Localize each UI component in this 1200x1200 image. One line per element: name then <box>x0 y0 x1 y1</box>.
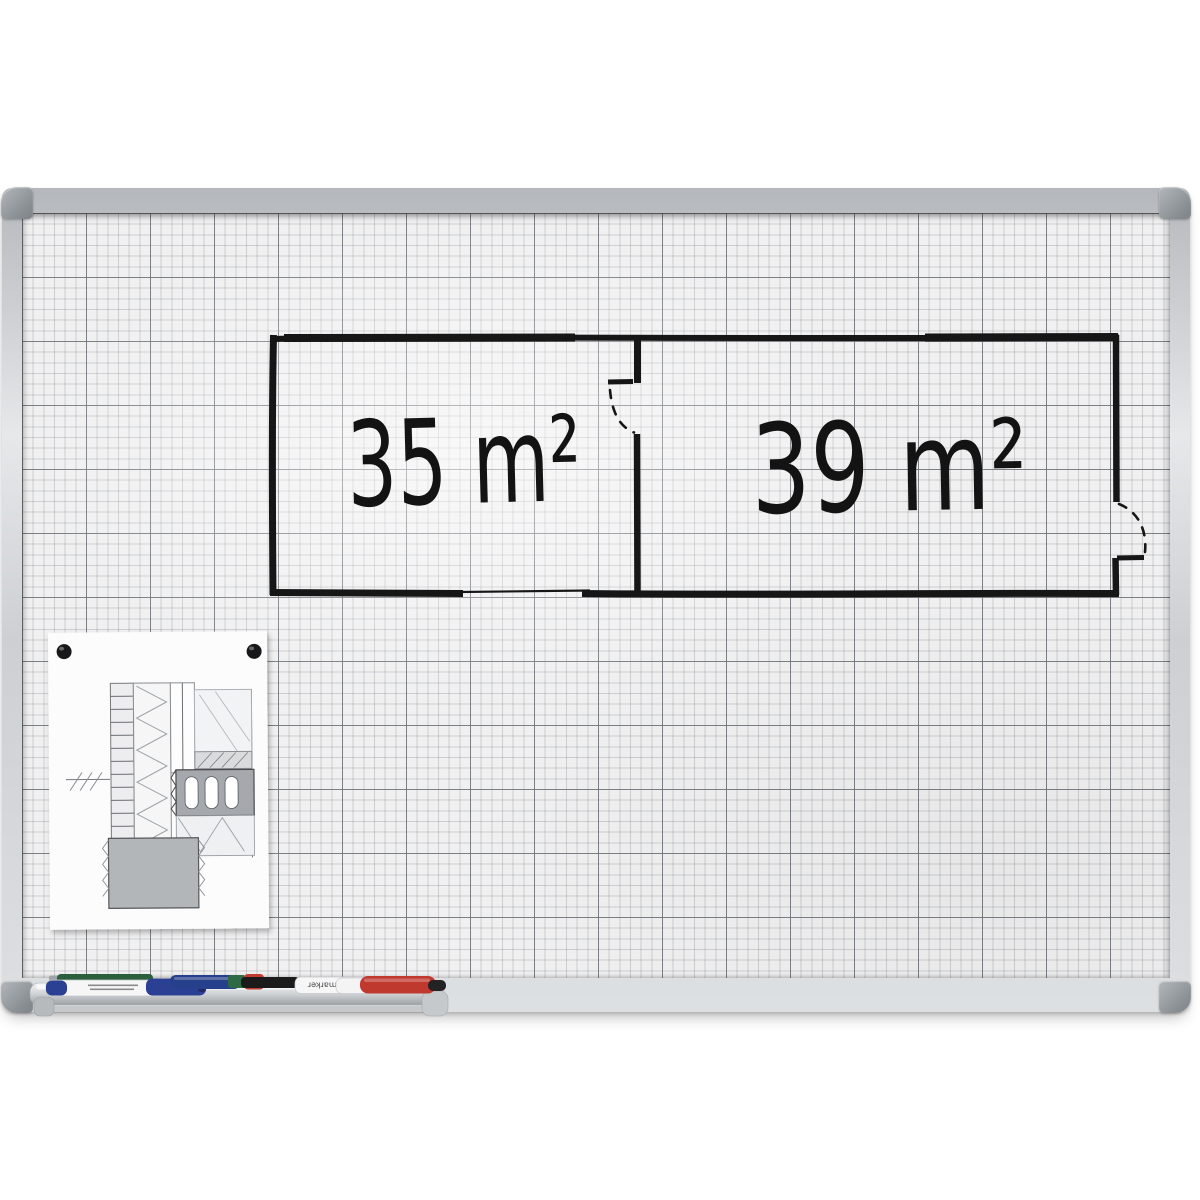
room-area-label-right: 39 m² <box>750 394 1028 543</box>
pen-tray: Planmarker <box>30 974 448 1016</box>
marker-fine-print <box>90 989 134 991</box>
door-leaf <box>1117 558 1144 559</box>
wall-bottom-thin <box>460 591 590 593</box>
marker-red <box>336 976 446 994</box>
door-leaf <box>608 382 633 383</box>
wall-bottom-right <box>582 593 1119 594</box>
wall-top-overstroke-left <box>284 338 575 339</box>
slab-void <box>205 777 218 809</box>
marker-highlight <box>364 979 430 983</box>
door-swing-exterior <box>1117 504 1145 558</box>
pin-highlight <box>59 647 64 651</box>
wall-left <box>272 335 273 595</box>
push-pin-left <box>57 644 72 659</box>
slab-void <box>225 776 238 808</box>
marker-end <box>46 981 67 996</box>
inner-layer-line <box>182 683 183 773</box>
marker-highlight <box>174 977 234 980</box>
room-area-label-left: 35 m² <box>345 390 583 534</box>
overlay-artwork: 35 m² 39 m² <box>0 0 1200 1200</box>
pin-highlight <box>249 646 254 650</box>
wall-right-lower <box>1116 558 1117 595</box>
push-pin-right <box>247 644 262 659</box>
masonry-column <box>110 683 134 841</box>
marker-cap <box>241 977 299 988</box>
pinned-paper <box>48 631 269 930</box>
tray-shadow <box>36 1006 436 1013</box>
wall-top-overstroke-right <box>925 337 1118 338</box>
tray-end-right <box>422 991 448 1016</box>
marker-fine-print <box>88 985 138 987</box>
wall-divider-lower <box>637 434 638 595</box>
tray-end-left <box>34 997 54 1016</box>
slab-void <box>185 777 198 809</box>
foundation-block <box>108 838 198 909</box>
door-swing-interior <box>608 382 634 433</box>
floor-plan-sketch: 35 m² 39 m² <box>270 335 1145 595</box>
wall-right-upper <box>1116 335 1117 502</box>
door-arc <box>1119 504 1145 552</box>
marker-tip <box>428 980 446 991</box>
door-arc <box>610 390 634 433</box>
wall-bottom-left <box>270 593 463 594</box>
